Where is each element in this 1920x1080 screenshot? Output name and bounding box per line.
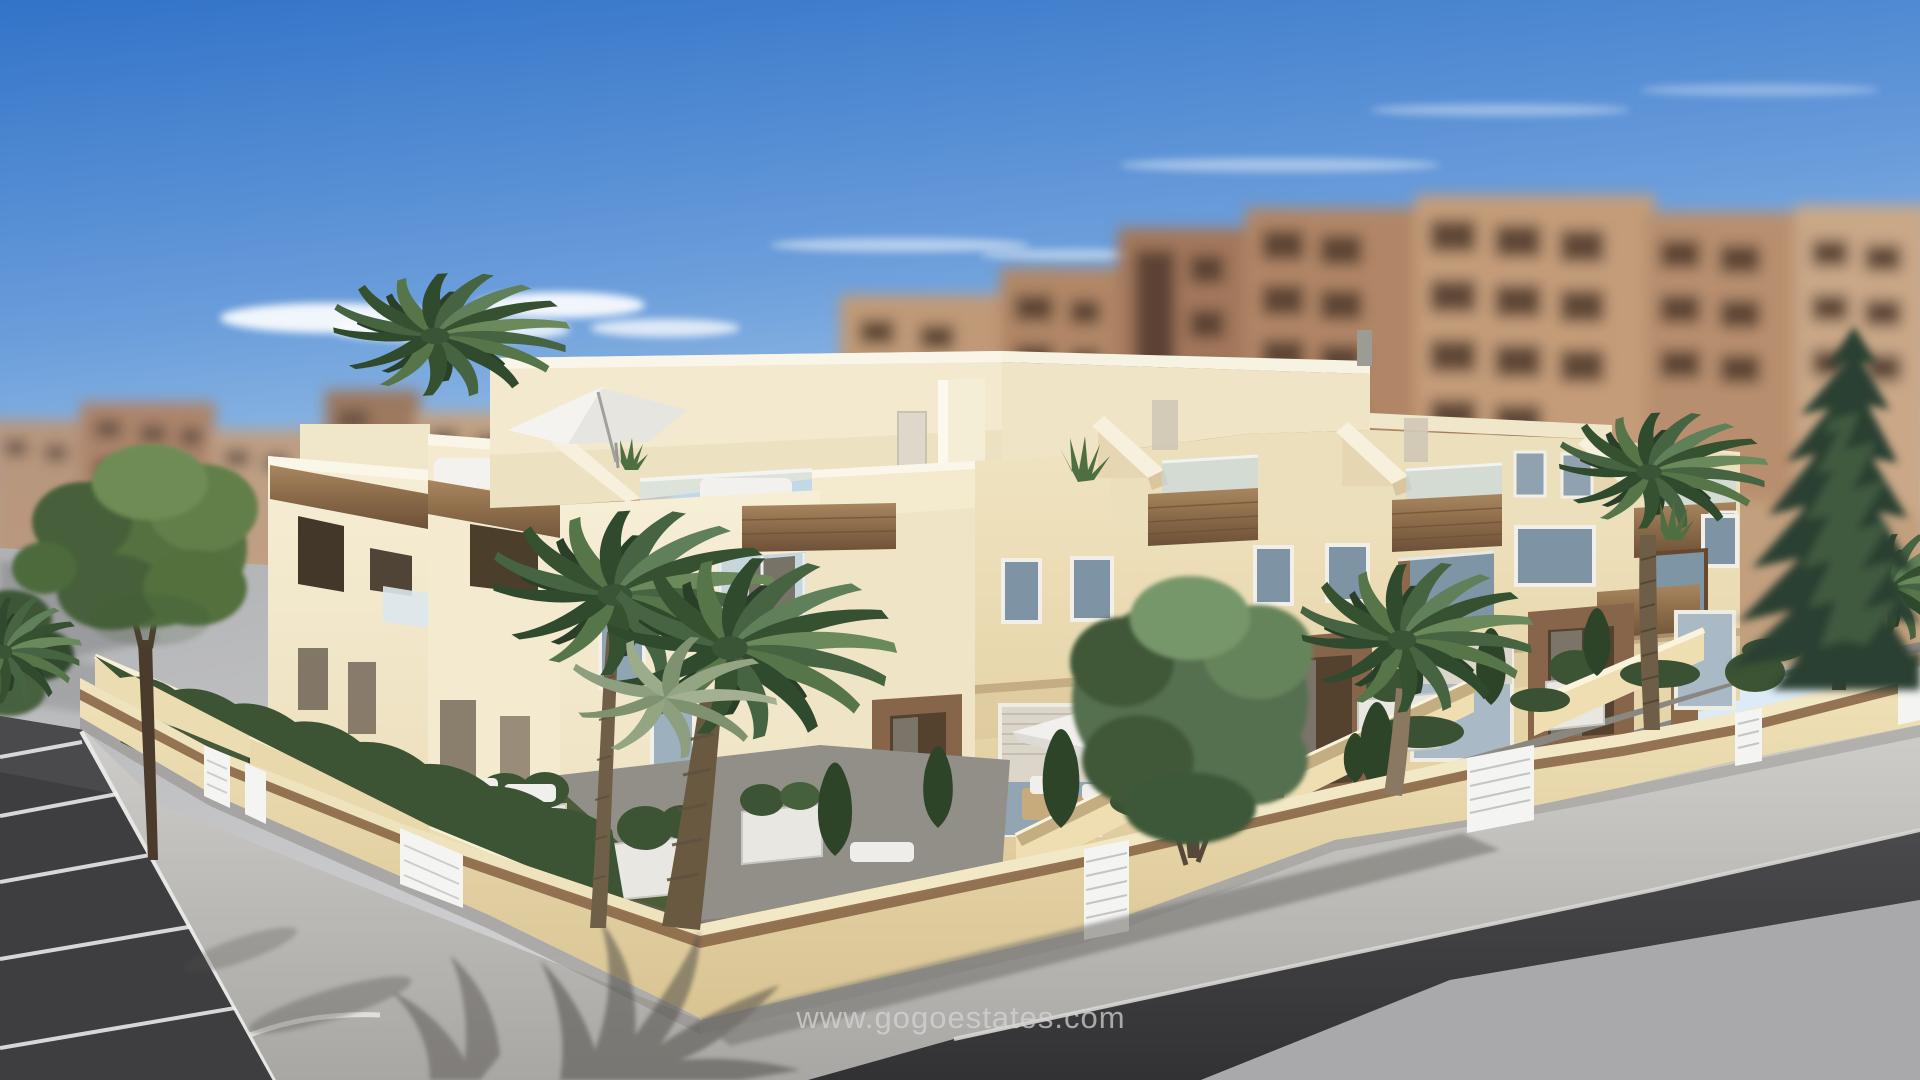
svg-text:www.gogoestates.com: www.gogoestates.com [795,1000,1125,1035]
